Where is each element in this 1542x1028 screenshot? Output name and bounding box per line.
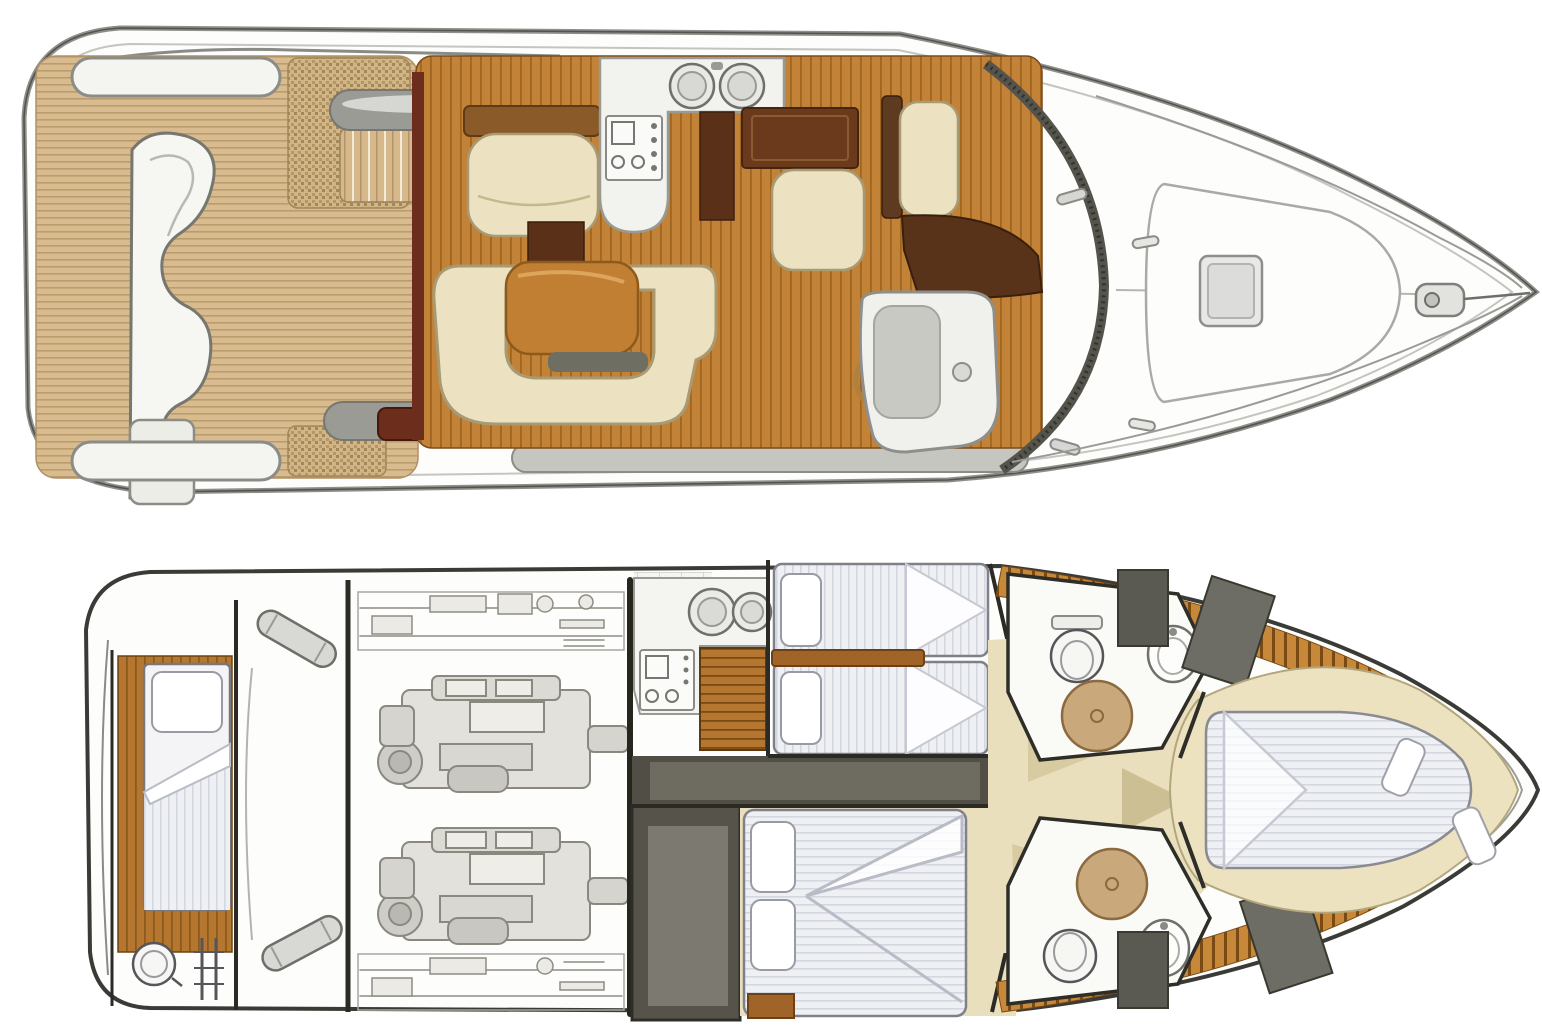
galley-tall-cabinet — [700, 112, 734, 220]
shower-bottom-icon — [1077, 849, 1147, 919]
main-deck-plan — [24, 28, 1536, 504]
windlass-drum — [1425, 293, 1439, 307]
stove-knob-2 — [651, 137, 657, 143]
side-panel-bottom-aft — [1118, 932, 1168, 1008]
stove-knob-1 — [651, 123, 657, 129]
sink-top-faucet — [1169, 628, 1177, 636]
shower-top-icon — [1062, 681, 1132, 751]
salon-aft-wall — [412, 72, 424, 440]
stove-knob-4 — [651, 165, 657, 171]
mid-cabin-pillow-1 — [751, 822, 795, 892]
mid-cabin-pillow-2 — [751, 900, 795, 970]
porthole-icon — [133, 943, 175, 985]
side-panel-top-aft — [1118, 570, 1168, 646]
aft-settee-cushion — [468, 134, 598, 236]
vip-cabin — [1170, 667, 1518, 912]
deck-plan-svg — [0, 0, 1542, 1028]
helm-seat-bolt — [953, 363, 971, 381]
lower-stove-dot-1 — [684, 656, 689, 661]
toilet-tank-top — [1052, 616, 1102, 629]
aft-cabin — [112, 600, 236, 1010]
toilet-top-icon — [1051, 630, 1103, 682]
galley-sink-left-basin — [678, 72, 706, 100]
lower-stove-dot-2 — [684, 668, 689, 673]
galley-wood-cabinet — [700, 648, 766, 750]
aft-settee-wood-frame — [464, 106, 600, 136]
helm-seat-cushion — [874, 306, 940, 418]
aft-cabin-pillow — [152, 672, 222, 732]
lower-stove-dot-3 — [684, 680, 689, 685]
yacht-deck-plan-image — [0, 0, 1542, 1028]
gunwale-pad-bottom — [72, 442, 280, 480]
wardrobe-inner-panel — [648, 826, 728, 1006]
stove-knob-3 — [651, 151, 657, 157]
sink-bottom-faucet — [1160, 922, 1168, 930]
foredeck-hatch-glass — [1208, 264, 1254, 318]
twin-bed-lower-pillow — [781, 672, 821, 744]
copilot-seat — [900, 102, 958, 216]
lower-sink-right-basin — [741, 601, 763, 623]
gunwale-pad-top — [72, 58, 280, 96]
twin-bed-upper-pillow — [781, 574, 821, 646]
dinette-table-shadow — [548, 352, 648, 372]
lower-deck-plan — [86, 560, 1538, 1020]
lower-sink-left-basin — [698, 598, 726, 626]
galley-faucet — [711, 62, 723, 70]
toilet-bottom-icon — [1044, 930, 1096, 982]
twin-cabin-shelf — [772, 650, 924, 666]
salon-bench-cushion — [772, 170, 864, 270]
mid-cabin-step — [748, 994, 794, 1018]
galley-sink-right-basin — [728, 72, 756, 100]
companionway-corridor-floor — [650, 762, 980, 800]
